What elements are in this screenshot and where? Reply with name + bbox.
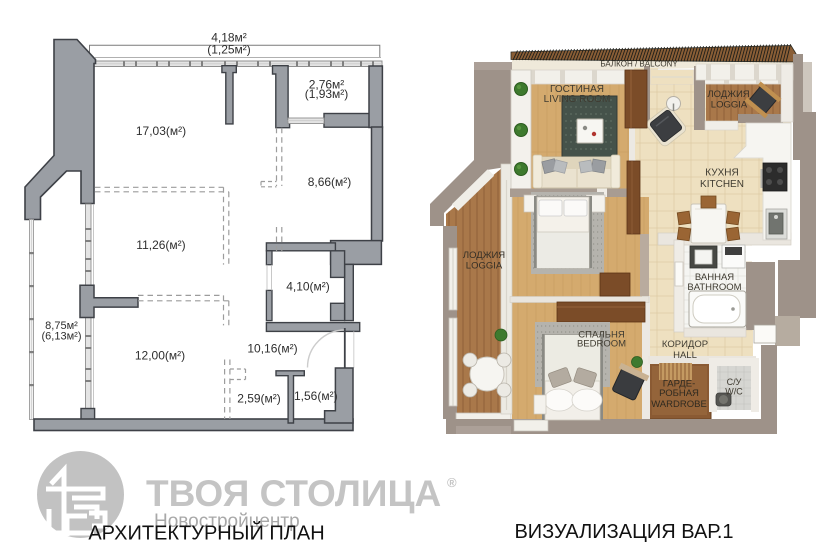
svg-text:ЛОДЖИЯ: ЛОДЖИЯ: [463, 250, 505, 261]
svg-text:KITCHEN: KITCHEN: [700, 179, 744, 190]
svg-text:2,59(м²): 2,59(м²): [237, 392, 281, 406]
svg-text:РОБНАЯ: РОБНАЯ: [659, 388, 699, 399]
svg-text:LOGGIA: LOGGIA: [466, 261, 503, 272]
svg-text:BATHROOM: BATHROOM: [687, 282, 741, 293]
svg-text:WARDROBE: WARDROBE: [651, 399, 707, 410]
svg-text:17,03(м²): 17,03(м²): [136, 124, 186, 138]
svg-text:1,56(м²): 1,56(м²): [294, 389, 338, 403]
svg-text:4,10(м²): 4,10(м²): [286, 280, 330, 294]
svg-text:ЛОДЖИЯ: ЛОДЖИЯ: [707, 89, 749, 100]
svg-text:КОРИДОР: КОРИДОР: [662, 339, 708, 350]
svg-text:(6,13м²): (6,13м²): [42, 331, 82, 343]
svg-text:11,26(м²): 11,26(м²): [136, 238, 185, 252]
svg-text:ТВОЯ СТОЛИЦА: ТВОЯ СТОЛИЦА: [146, 473, 441, 514]
svg-text:8,66(м²): 8,66(м²): [308, 175, 352, 189]
svg-text:12,00(м²): 12,00(м²): [135, 349, 185, 363]
svg-text:БАЛКОН / BALCONY: БАЛКОН / BALCONY: [600, 60, 678, 69]
svg-text:(1,25м²): (1,25м²): [207, 43, 251, 57]
svg-text:LOGGIA: LOGGIA: [711, 100, 748, 111]
svg-text:ВИЗУАЛИЗАЦИЯ ВАР.1: ВИЗУАЛИЗАЦИЯ ВАР.1: [514, 521, 733, 543]
svg-text:W/C: W/C: [725, 387, 743, 397]
svg-text:BEDROOM: BEDROOM: [577, 339, 626, 350]
svg-text:HALL: HALL: [673, 350, 697, 361]
svg-text:LIVING ROOM: LIVING ROOM: [544, 94, 611, 105]
svg-text:®: ®: [447, 475, 457, 490]
svg-text:10,16(м²): 10,16(м²): [247, 342, 297, 356]
svg-text:С/У: С/У: [727, 377, 742, 387]
svg-text:(1,93м²): (1,93м²): [305, 87, 349, 101]
svg-text:КУХНЯ: КУХНЯ: [705, 168, 738, 179]
svg-text:АРХИТЕКТУРНЫЙ ПЛАН: АРХИТЕКТУРНЫЙ ПЛАН: [88, 521, 324, 545]
